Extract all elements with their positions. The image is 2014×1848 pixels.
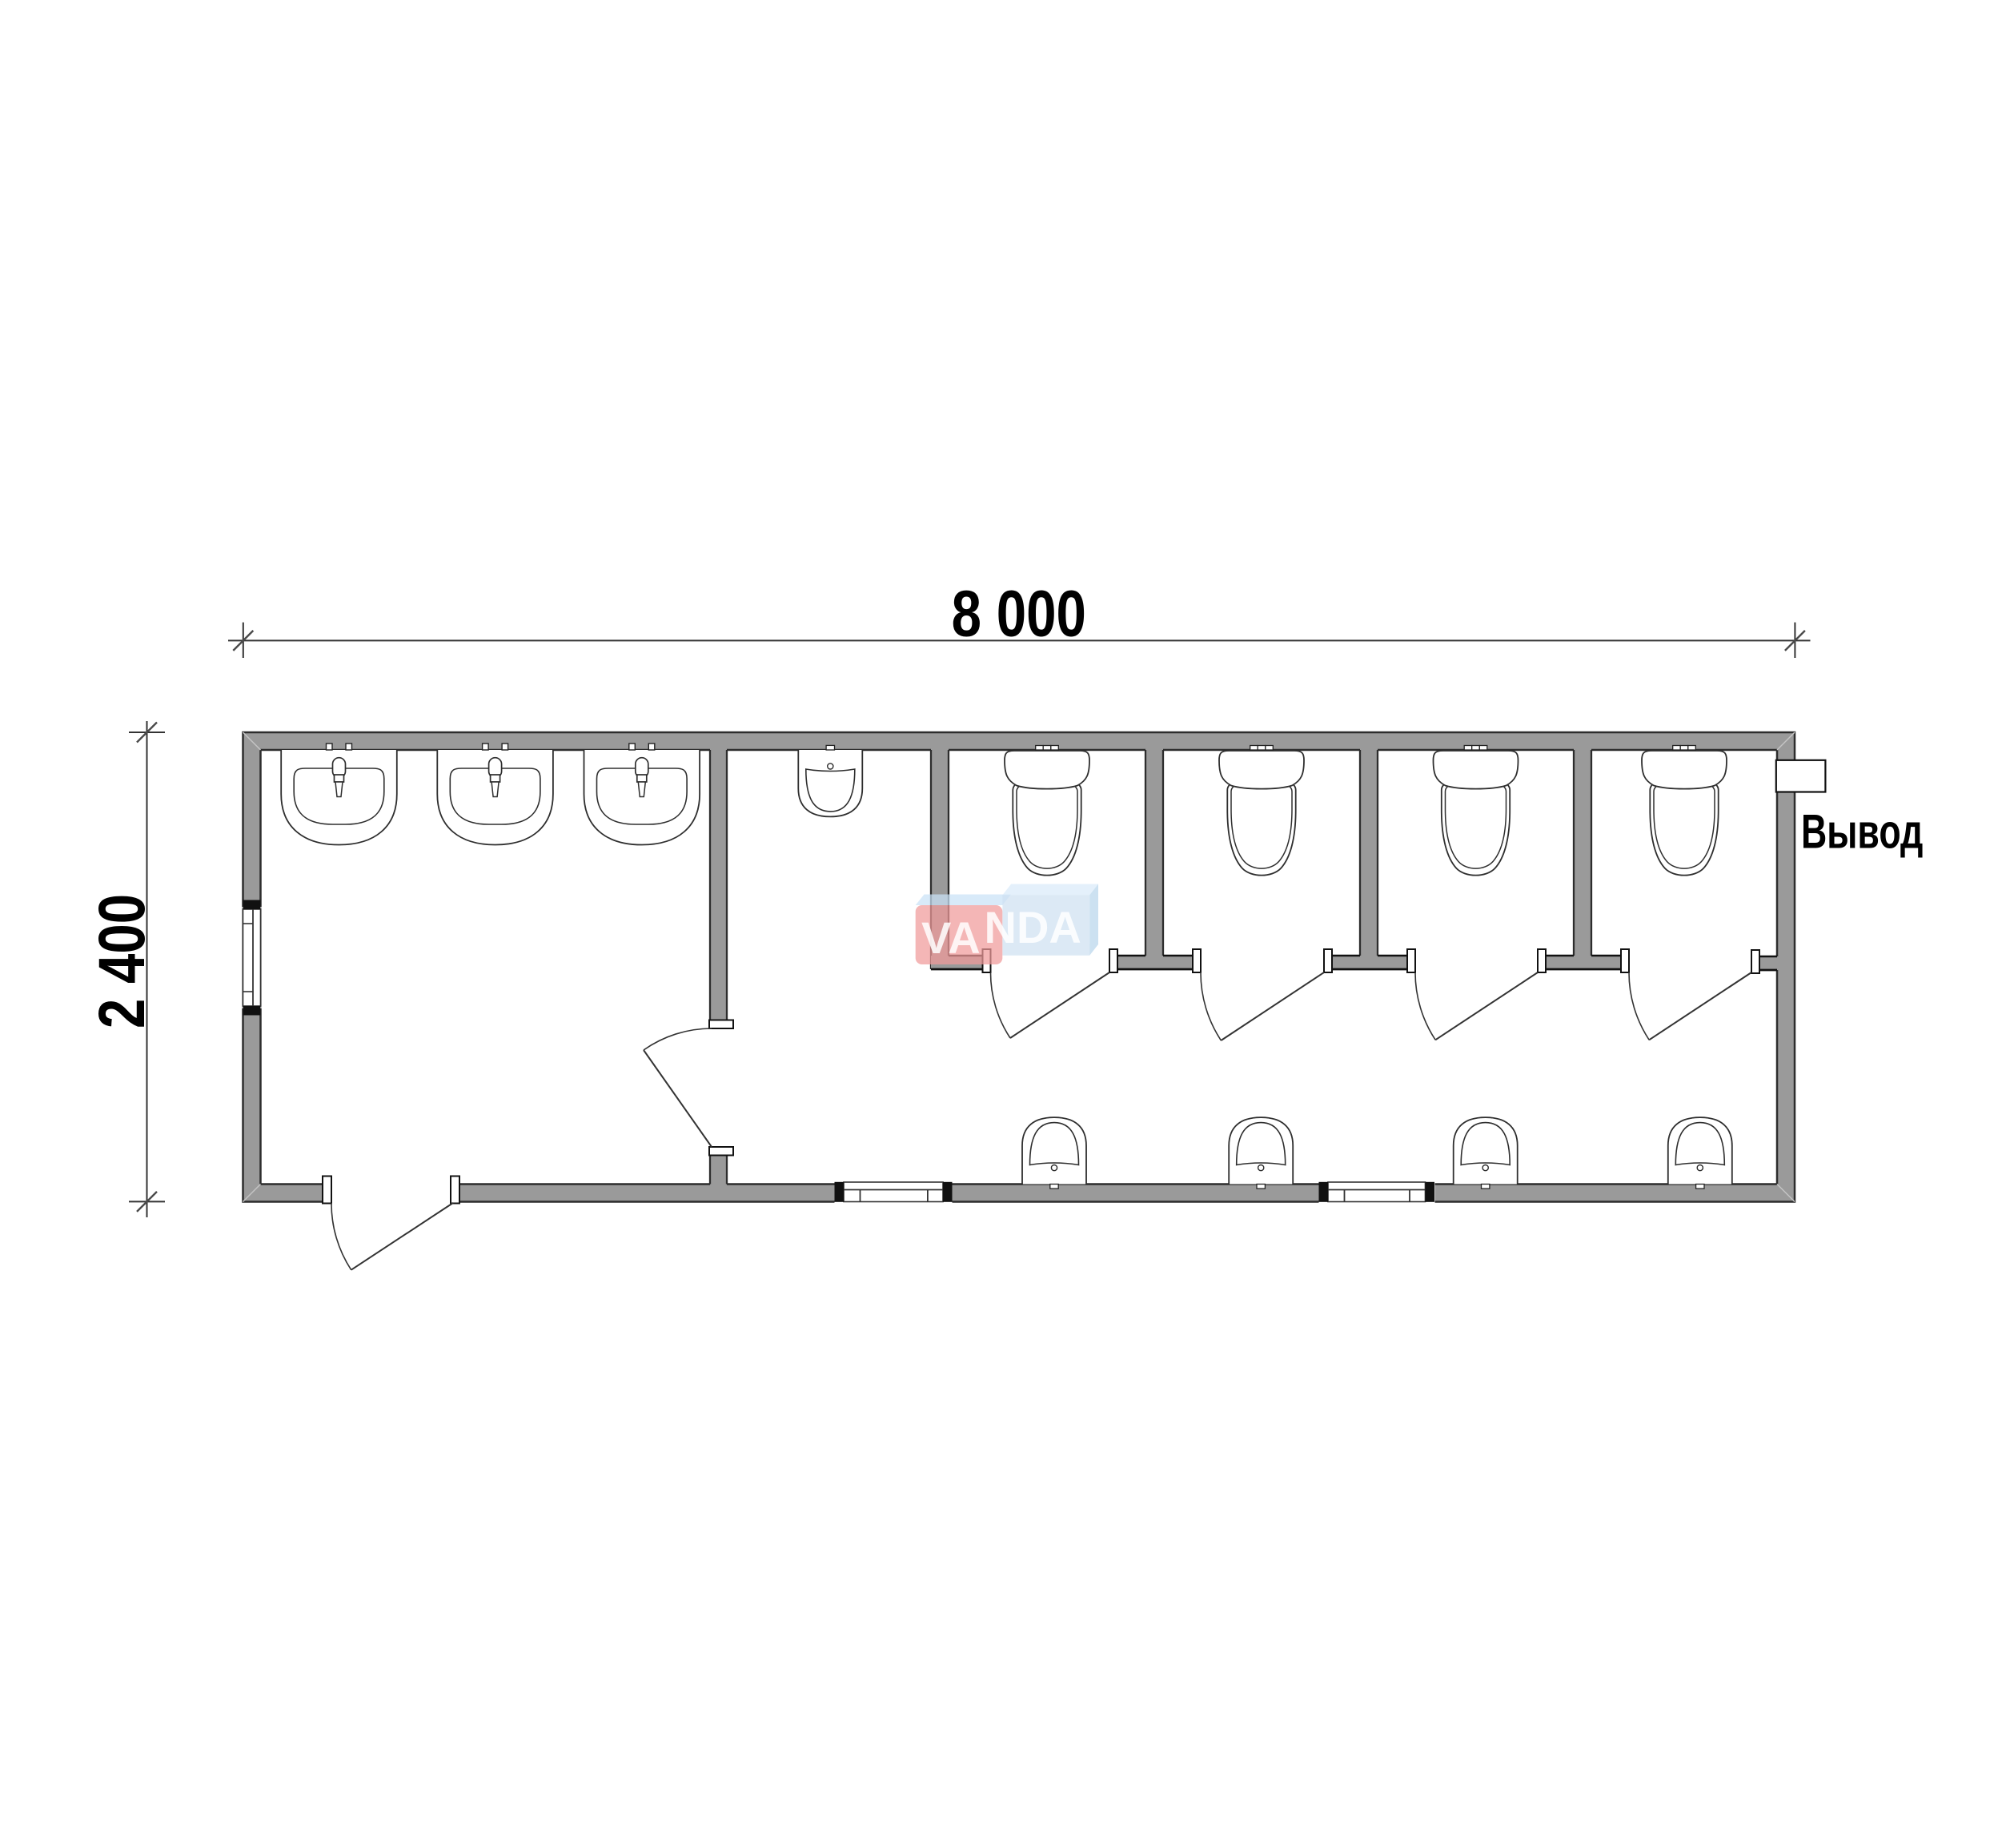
svg-text:Вывод: Вывод bbox=[1801, 805, 1923, 859]
svg-text:2 400: 2 400 bbox=[85, 894, 158, 1028]
svg-text:VA: VA bbox=[921, 912, 981, 963]
svg-text:8 000: 8 000 bbox=[952, 576, 1086, 650]
svg-text:NDA: NDA bbox=[985, 902, 1081, 952]
